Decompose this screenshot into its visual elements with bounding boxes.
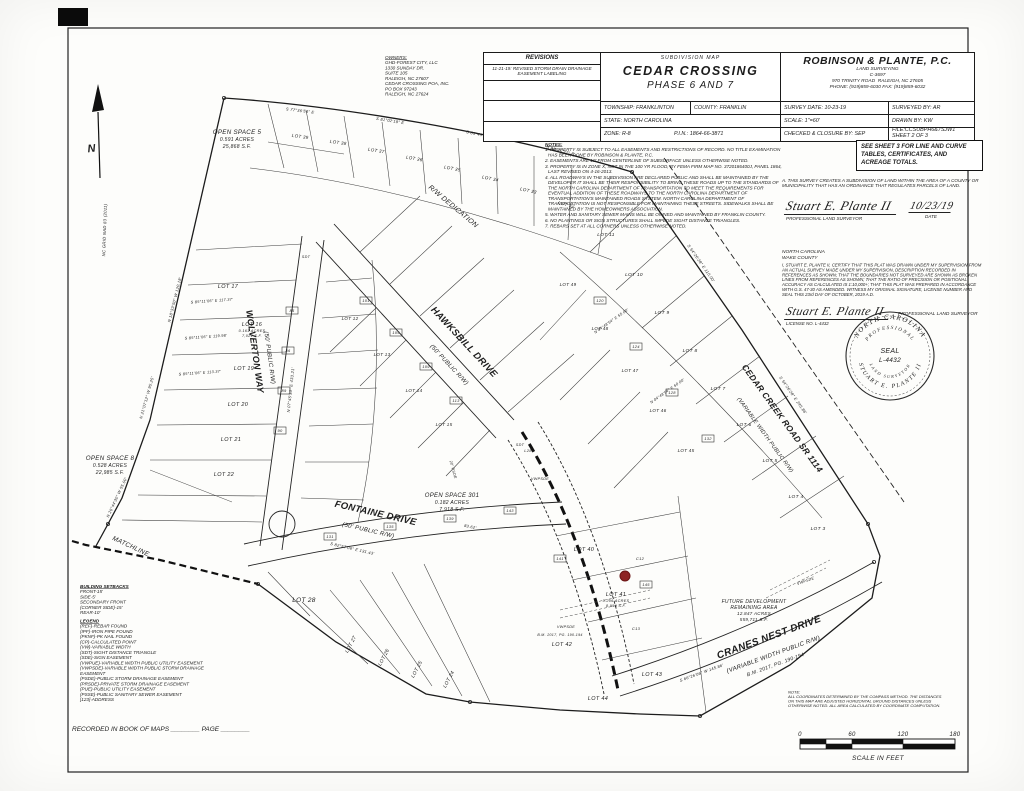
plat-label: VWPSDE: [557, 625, 575, 629]
plat-label: LOT 45: [678, 448, 695, 453]
matchline: [72, 541, 258, 584]
plat-label: SDT: [302, 255, 311, 259]
recorded-line: RECORDED IN BOOK OF MAPS ________ PAGE _…: [72, 726, 250, 733]
plat-label: LOT 24: [442, 670, 456, 689]
plat-label: 25,868 S.F.: [222, 144, 252, 150]
fontaine-drive-south-edge: [248, 524, 566, 566]
signature-2-license: LICENSE NO. L-4432: [786, 321, 890, 326]
cul-de-sac-knuckle: [269, 511, 295, 537]
plat-label: R/W DEDICATION: [427, 184, 480, 230]
address-label: 143: [506, 508, 514, 513]
setbacks-list: FRONT-15'SIDE-5'SECONDARY FRONT(CORNER S…: [80, 589, 220, 615]
plat-label: LOT 15: [436, 422, 453, 427]
plat-label: LOT 4: [789, 494, 804, 500]
plat-label: LOT 3: [811, 526, 826, 532]
title-column: SUBDIVISION MAP CEDAR CROSSING PHASE 6 A…: [601, 53, 781, 141]
scan-artifact: [58, 8, 88, 26]
scale-note-line: OTHERWISE NOTED. ALL AREA CALCULATED BY …: [788, 704, 978, 709]
plat-label: LOT 44: [588, 696, 608, 702]
plat-label: LOT 38: [330, 139, 348, 146]
plat-label: LOT 8: [683, 348, 698, 354]
plat-label: 0.182 ACRES: [435, 500, 470, 506]
plat-label: LOT 25: [410, 660, 424, 679]
north-arrow: N NC GRID NAD 83 (2011): [87, 84, 108, 256]
plat-label: S 85°11'06" E 119.98': [185, 334, 228, 341]
plat-label: LOT 43: [642, 672, 663, 678]
plat-label: 0.528 ACRES: [93, 463, 128, 469]
scale-cell: SCALE: 1"=60': [781, 115, 889, 127]
svg-text:LAND SURVEYOR: LAND SURVEYOR: [868, 362, 911, 380]
legend-block: BUILDING SETBACKS FRONT-15'SIDE-5'SECOND…: [80, 584, 220, 791]
plat-label: LOT 39: [292, 133, 310, 140]
plat-label: SDT: [516, 443, 525, 447]
date-block: 10/23/19 DATE: [910, 200, 952, 219]
plat-label: 8,956 S.F.: [606, 604, 626, 608]
surveyor-signature-1: Stuart E. Plante II: [784, 198, 900, 215]
zone-cell: ZONE: R-8: [601, 128, 671, 140]
drawn-by-cell: DRAWN BY: KW: [889, 115, 935, 127]
notes-block: NOTES: 1. PROPERTY IS SUBJECT TO ALL EAS…: [545, 142, 783, 317]
firm-subtitle: LAND SURVEYING: [856, 67, 898, 72]
plat-label: L28: [524, 448, 532, 453]
lot-dividers-center-west: [301, 278, 378, 500]
plat-label: 22,985 S.F.: [95, 470, 125, 476]
plat-label: OPEN SPACE 8: [86, 455, 135, 462]
scale-tick-120: 120: [898, 732, 909, 738]
plat-label: 7,021 S.F.: [242, 334, 262, 338]
address-label: 124: [632, 344, 640, 349]
signature-date: 10/23/19: [908, 200, 953, 213]
title-block: REVISIONS 11-21-19: REVISED STORM DRAIN …: [483, 52, 975, 142]
scale-bar-segments: [800, 739, 955, 749]
legend-item: (VWPSDE)-VARIABLE WIDTH PUBLIC STORM DRA…: [80, 666, 220, 676]
plat-label: C13: [632, 626, 641, 631]
scale-tick-60: 60: [848, 732, 856, 738]
seal-license: L-4432: [879, 357, 901, 364]
surveyor-signature-2: Stuart E. Plante II: [784, 304, 892, 320]
state-cell: STATE: NORTH CAROLINA: [601, 115, 675, 127]
plat-label: LOT 20: [228, 402, 249, 408]
survey-date-cell: SURVEY DATE: 10-23-19: [781, 102, 889, 114]
scale-bar-block: NOTE:ALL COORDINATES DETERMINED BY THE C…: [788, 690, 978, 764]
note-item: 2. EASEMENTS ARE 10' FROM CENTERLINE OF …: [545, 158, 783, 163]
plat-label: 83.62': [464, 523, 477, 531]
note-item: 6. NO PLANTINGS OR SIGN STRUCTURES SHALL…: [545, 218, 783, 223]
plat-label: LOT 17: [218, 284, 239, 290]
plat-label: B.M. 2017, PG. 190-194: [537, 633, 582, 637]
plat-label: N 07°45'33" E 433.21': [286, 367, 296, 413]
signature-2-title: PROFESSIONAL LAND SURVEYOR: [898, 312, 978, 317]
see-sheet-note: SEE SHEET 3 FOR LINE AND CURVE TABLES, C…: [856, 140, 983, 171]
note-item: 1. PROPERTY IS SUBJECT TO ALL EASEMENTS …: [545, 147, 783, 157]
seal-word: SEAL: [880, 348, 899, 355]
plat-label: VWPSDE: [796, 576, 815, 586]
address-label: 89: [281, 388, 287, 393]
note-item: 3. PROPERTY IS IN ZONE X, NOT IN THE 100…: [545, 164, 783, 174]
certificate-jurisdiction: NORTH CAROLINA WAKE COUNTY: [782, 250, 825, 262]
certificate-a-text: A. THIS SURVEY CREATES A SUBDIVISION OF …: [782, 178, 980, 188]
plat-label: LOT 12: [342, 316, 359, 321]
phase-label: PHASE 6 AND 7: [601, 80, 780, 91]
plat-label: LOT 36: [406, 155, 424, 163]
scale-tick-180: 180: [950, 732, 961, 738]
plat-label: S 66°26'06" W 145.86': [679, 662, 724, 683]
address-label: 135: [386, 524, 394, 529]
firm-address2: RALEIGH, NC 27605: [878, 79, 923, 84]
plat-sheet: N NC GRID NAD 83 (2011) NORTH CAROLINA P…: [0, 0, 1024, 791]
note-item: 5. WATER AND SANITARY SEWER MAINS WILL B…: [545, 212, 783, 217]
plat-label: 559,711 S.F.: [740, 617, 768, 622]
plat-label: LOT 40: [574, 547, 595, 553]
plat-label: (50' PUBLIC R/W): [428, 344, 469, 387]
plat-label: C12: [636, 556, 645, 561]
plat-label: LOT 6: [737, 422, 752, 428]
plat-label: LOT 37: [368, 147, 386, 155]
plat-label: S 85°11'06" E 117.37': [191, 298, 234, 305]
signature-block-1: Stuart E. Plante II PROFESSIONAL LAND SU…: [786, 198, 898, 221]
plat-label: LOT 46: [650, 408, 667, 413]
map-type: SUBDIVISION MAP: [601, 55, 780, 61]
signature-block-2: Stuart E. Plante II LICENSE NO. L-4432: [786, 304, 890, 326]
address-label: 90: [277, 428, 283, 433]
plat-label: 20' PSDE: [448, 459, 457, 479]
note-item: 7. REBARS SET AT ALL CORNERS UNLESS OTHE…: [545, 224, 783, 229]
plat-label: N 21°07'12" W 95.25': [138, 376, 155, 420]
address-label: 132: [704, 436, 712, 441]
address-label: 101: [362, 298, 370, 303]
plat-label: LOT 26: [377, 648, 391, 667]
scale-bar-note: NOTE:ALL COORDINATES DETERMINED BY THE C…: [788, 690, 978, 708]
surveyed-by-cell: SURVEYED BY: AR: [889, 102, 943, 114]
north-arrow-label: N: [87, 143, 97, 156]
township-cell: TOWNSHIP: FRANKLINTON: [601, 102, 691, 114]
plat-label: 7,918 S.F.: [439, 507, 464, 513]
plat-label: LOT 28: [292, 597, 316, 604]
plat-label: 0.161 ACRES: [239, 329, 266, 333]
address-label: 113: [452, 398, 460, 403]
address-label: 109: [422, 364, 430, 369]
address-label: 145: [642, 582, 650, 587]
certificate-b-text: I, STUART E. PLANTE II, CERTIFY THAT THI…: [782, 263, 982, 297]
plat-label: LOT 47: [622, 368, 639, 373]
legend-list: (REF)-REBAR FOUND(IPF)-IRON PIPE FOUND(P…: [80, 624, 220, 703]
scale-bar: 0 60 120 180 SCALE IN FEET: [788, 728, 968, 764]
plat-label: N 26°44'30" W 55.00': [105, 476, 128, 518]
plat-label: LOT 19: [234, 366, 254, 372]
firm-license: C-3697: [870, 73, 886, 78]
scale-caption: SCALE IN FEET: [852, 755, 905, 762]
phase-street-edges: [508, 422, 634, 694]
revisions-column: REVISIONS 11-21-19: REVISED STORM DRAIN …: [484, 53, 601, 141]
address-label: 105: [392, 330, 400, 335]
plat-label: VWPSDE: [531, 477, 549, 481]
address-label: 131: [326, 534, 334, 539]
plat-label: LOT 34: [482, 174, 500, 182]
plat-label: LOT 5: [763, 458, 778, 464]
address-label: 86: [285, 348, 291, 353]
date-label: DATE: [910, 214, 952, 219]
revision-entry: 11-21-19: REVISED STORM DRAIN DRAINAGE E…: [484, 65, 600, 81]
notes-list: 1. PROPERTY IS SUBJECT TO ALL EASEMENTS …: [545, 147, 783, 229]
address-label: 139: [446, 516, 454, 521]
plat-label: LOT 14: [406, 388, 423, 393]
north-arrow-head: [92, 84, 104, 112]
subdivision-title: CEDAR CROSSING: [601, 64, 780, 78]
north-arrow-datum: NC GRID NAD 83 (2011): [101, 203, 108, 256]
plat-label: 0.591 ACRES: [220, 137, 255, 143]
certificate-a: A. THIS SURVEY CREATES A SUBDIVISION OF …: [782, 178, 980, 199]
boundary-left: [96, 98, 224, 546]
plat-label: 12.847 ACRES: [737, 611, 771, 616]
plat-label: LOT 13: [374, 352, 391, 357]
phase-street-centerline: [522, 432, 618, 690]
address-label: 128: [668, 390, 676, 395]
pin-cell: P.I.N.: 1864-66-3871: [671, 128, 726, 140]
legend-item: [123]-ADDRESS: [80, 697, 220, 702]
plat-label: LOT 7: [711, 386, 726, 392]
note-item: 4. ALL ROADWAYS IN THE SUBDIVISION ARE D…: [545, 175, 783, 212]
plat-label: S 77°36'54" E: [286, 106, 315, 114]
firm-column: ROBINSON & PLANTE, P.C. LAND SURVEYING C…: [781, 53, 974, 141]
checked-by-cell: CHECKED & CLOSURE BY: SEP: [781, 128, 889, 140]
storm-drainage-easements: [560, 560, 830, 618]
plat-label: LOT 16: [242, 322, 263, 328]
signature-1-title: PROFESSIONAL LAND SURVEYOR: [786, 216, 898, 221]
address-label: 141: [556, 556, 564, 561]
firm-address1: 970 TRINITY ROAD: [832, 79, 875, 84]
plat-label: S 85°11'06" E 113.37': [179, 370, 222, 377]
plat-label: LOT 35: [444, 164, 462, 172]
plat-label: OPEN SPACE 5: [213, 129, 262, 136]
address-label: 85: [289, 308, 295, 313]
plat-label: 0.206 ACRES: [603, 599, 630, 603]
plat-label: LOT 41: [606, 592, 626, 598]
seal-arc-bottom-inner: LAND SURVEYOR: [868, 362, 911, 380]
plat-label: LOT 33: [520, 186, 538, 195]
plat-label: LOT 42: [552, 642, 572, 648]
firm-phone: PHONE: (919)859-6030 FAX: (919)859-6032: [830, 85, 926, 90]
county-cell: COUNTY: FRANKLIN: [691, 102, 749, 114]
plat-label: LOT 21: [221, 437, 241, 443]
firm-name: ROBINSON & PLANTE, P.C.: [781, 55, 974, 67]
lot-dividers-southwest: [268, 564, 490, 702]
plat-label: LOT 22: [214, 472, 234, 478]
plat-label: OPEN SPACE 301: [425, 493, 479, 499]
revisions-header: REVISIONS: [484, 53, 600, 65]
plat-label: HAWKSBILL DRIVE: [428, 305, 499, 380]
scale-tick-0: 0: [798, 732, 802, 738]
red-location-dot: [620, 571, 630, 581]
